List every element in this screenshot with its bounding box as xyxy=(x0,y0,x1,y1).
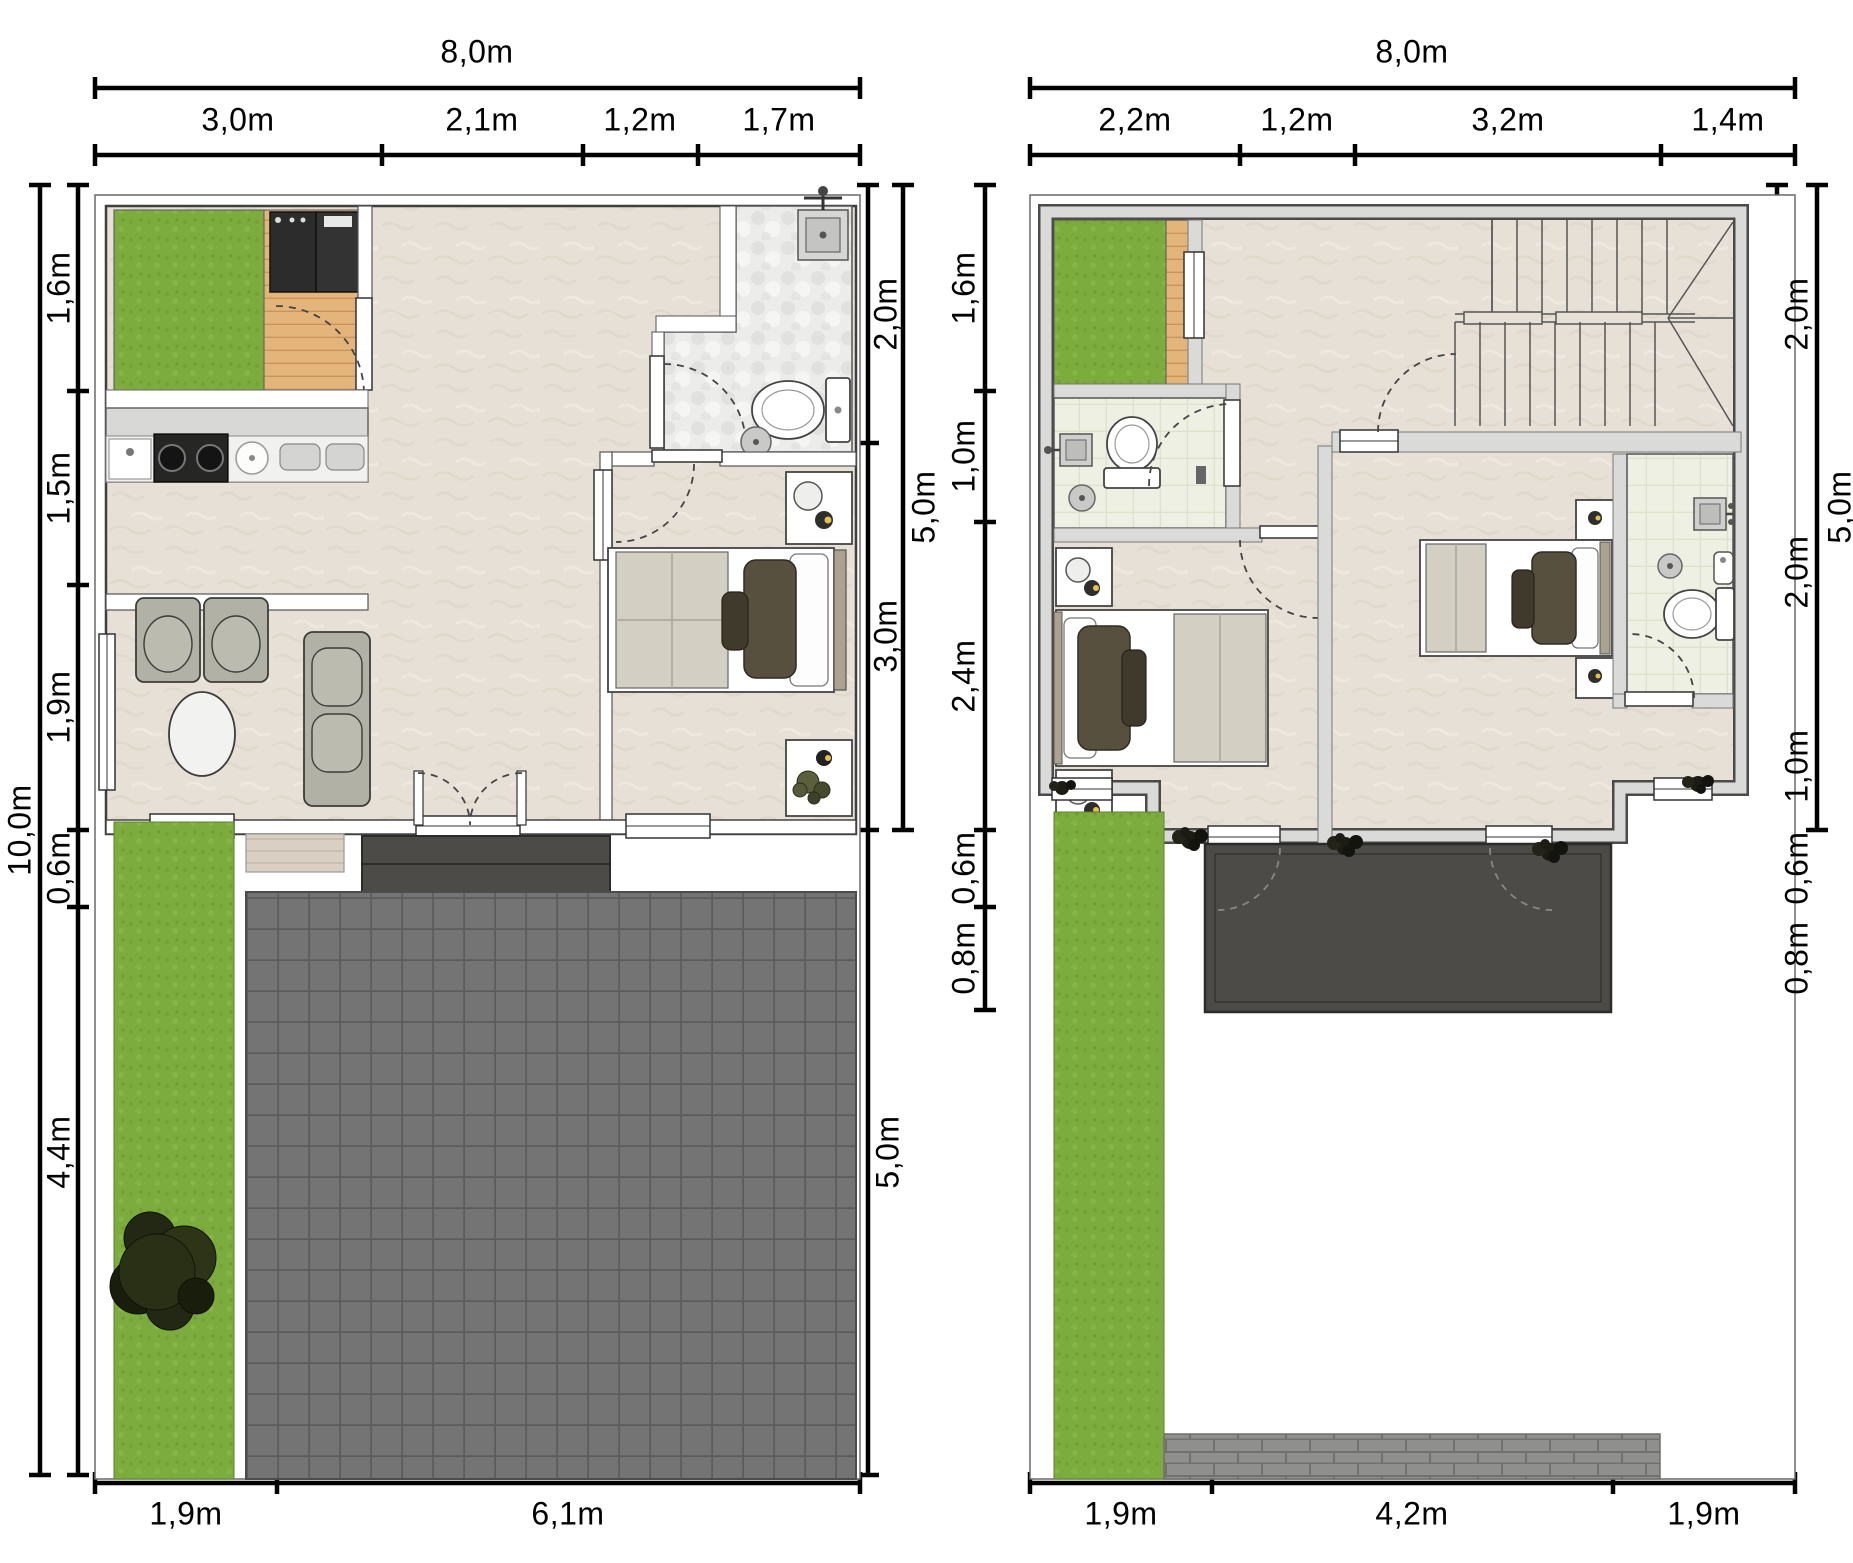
paver-strip xyxy=(1164,1434,1660,1479)
toilet xyxy=(1104,417,1160,488)
uf-dim-left-seg-1: 1,0m xyxy=(946,419,983,492)
gf-dim-top-seg-1: 2,1m xyxy=(445,102,518,139)
uf-dim-right-seg-0: 2,0m xyxy=(1779,277,1816,350)
wall-segment xyxy=(720,452,856,466)
side-garden-grass xyxy=(1054,812,1164,1479)
headboard xyxy=(834,550,846,690)
wall-segment xyxy=(1613,454,1627,694)
sofa xyxy=(304,632,370,806)
driveway-pavers xyxy=(246,892,856,1479)
uf-dim-right-total: 5,0m xyxy=(1822,470,1853,543)
uf-dim-bottom-seg-2: 1,9m xyxy=(1667,1496,1740,1533)
window xyxy=(1184,252,1204,338)
uf-dim-bottom-seg-1: 4,2m xyxy=(1375,1496,1448,1533)
gf-dim-right-seg-1: 3,0m xyxy=(868,599,905,672)
wall-segment xyxy=(656,316,736,332)
wall-segment xyxy=(106,390,368,408)
dish-basin xyxy=(326,444,364,470)
uf-dim-top-seg-3: 1,4m xyxy=(1691,102,1764,139)
ground-floor-plan xyxy=(40,88,903,1483)
gf-dim-right-total-upper: 5,0m xyxy=(906,470,943,543)
uf-dim-top-seg-1: 1,2m xyxy=(1260,102,1333,139)
gf-dim-top-seg-0: 3,0m xyxy=(201,102,274,139)
floor-plan-canvas: 8,0m 3,0m 2,1m 1,2m 1,7m 10,0m 1,6m 1,5m… xyxy=(0,0,1853,1563)
bathroom-door xyxy=(1625,692,1693,706)
bathroom-door xyxy=(1224,400,1240,486)
nightstand xyxy=(786,472,852,544)
dish-basin xyxy=(280,444,320,470)
gf-dim-left-seg-1: 1,5m xyxy=(41,451,78,524)
floor-plan-graphic xyxy=(0,0,1853,1563)
gf-dim-left-seg-0: 1,6m xyxy=(41,251,78,324)
wall-segment xyxy=(358,206,372,300)
window xyxy=(594,470,612,560)
window xyxy=(99,634,115,790)
wall-segment xyxy=(720,206,736,332)
gf-dim-left-seg-3: 0,6m xyxy=(41,831,78,904)
gf-dim-right-seg-0: 2,0m xyxy=(868,277,905,350)
armchair xyxy=(204,598,268,682)
wall-segment xyxy=(1054,384,1226,398)
wall-segment xyxy=(1054,528,1262,542)
side-table-plant xyxy=(786,740,852,816)
uf-dim-right-seg-3: 0,6m xyxy=(1779,831,1816,904)
uf-dim-right-seg-2: 1,0m xyxy=(1779,729,1816,802)
kitchen-sink xyxy=(109,439,151,479)
armchair xyxy=(136,598,200,682)
sink xyxy=(1714,552,1733,584)
wall-segment xyxy=(1692,694,1733,708)
door-mat xyxy=(362,836,610,892)
interior-window-sill xyxy=(1340,430,1398,452)
single-bed xyxy=(1420,540,1612,656)
uf-dim-right-seg-1: 2,0m xyxy=(1779,535,1816,608)
uf-bathroom-1 xyxy=(1044,384,1262,542)
uf-bathroom-2 xyxy=(1613,454,1734,708)
gf-dim-bottom-seg-1: 6,1m xyxy=(531,1496,604,1533)
gf-dim-top-seg-2: 1,2m xyxy=(603,102,676,139)
nightstand xyxy=(1576,500,1614,540)
double-bed xyxy=(1054,610,1268,766)
bathroom-door xyxy=(650,356,664,448)
toilet xyxy=(1664,588,1734,640)
gf-dim-left-seg-2: 1,9m xyxy=(41,670,78,743)
gf-dim-top-total: 8,0m xyxy=(440,34,513,71)
gf-kitchen xyxy=(106,390,368,482)
coffee-table xyxy=(169,692,235,776)
uf-dim-top-seg-2: 3,2m xyxy=(1471,102,1544,139)
cooktop xyxy=(154,434,228,482)
towel-hook xyxy=(1196,466,1206,484)
nightstand xyxy=(1576,658,1614,698)
gf-yard xyxy=(110,822,856,1479)
uf-dim-left-seg-0: 1,6m xyxy=(946,251,983,324)
grill-appliance xyxy=(270,212,362,292)
uf-patio-garden xyxy=(1054,220,1226,398)
uf-dim-right-seg-4: 0,8m xyxy=(1779,921,1816,994)
bedroom-door xyxy=(1260,526,1320,538)
nightstand xyxy=(1056,548,1112,606)
gf-patio-garden xyxy=(114,206,372,394)
wall-segment xyxy=(612,452,654,466)
bedroom-door xyxy=(652,450,722,462)
headboard xyxy=(1054,612,1062,764)
gf-dim-right-total-lower: 5,0m xyxy=(870,1115,907,1188)
gf-dim-left-total: 10,0m xyxy=(2,784,39,875)
uf-dim-left-seg-2: 2,4m xyxy=(946,639,983,712)
gf-dim-top-seg-3: 1,7m xyxy=(742,102,815,139)
uf-dim-top-total: 8,0m xyxy=(1375,34,1448,71)
headboard xyxy=(1600,542,1610,654)
double-bed xyxy=(608,548,846,692)
uf-dim-bottom-seg-0: 1,9m xyxy=(1084,1496,1157,1533)
uf-dim-left-seg-4: 0,8m xyxy=(946,921,983,994)
gf-dim-left-seg-4: 4,4m xyxy=(41,1115,78,1188)
porch-step xyxy=(246,834,344,872)
window xyxy=(626,814,710,838)
patio-door xyxy=(356,298,372,390)
balcony xyxy=(1205,844,1611,1012)
shower xyxy=(798,186,848,260)
wall-segment xyxy=(1318,446,1332,844)
uf-dim-left-seg-3: 0,6m xyxy=(946,831,983,904)
side-garden-grass xyxy=(114,822,234,1479)
upper-floor-plan xyxy=(985,88,1817,1483)
gf-dim-bottom-seg-0: 1,9m xyxy=(149,1496,222,1533)
uf-dim-top-seg-0: 2,2m xyxy=(1098,102,1171,139)
